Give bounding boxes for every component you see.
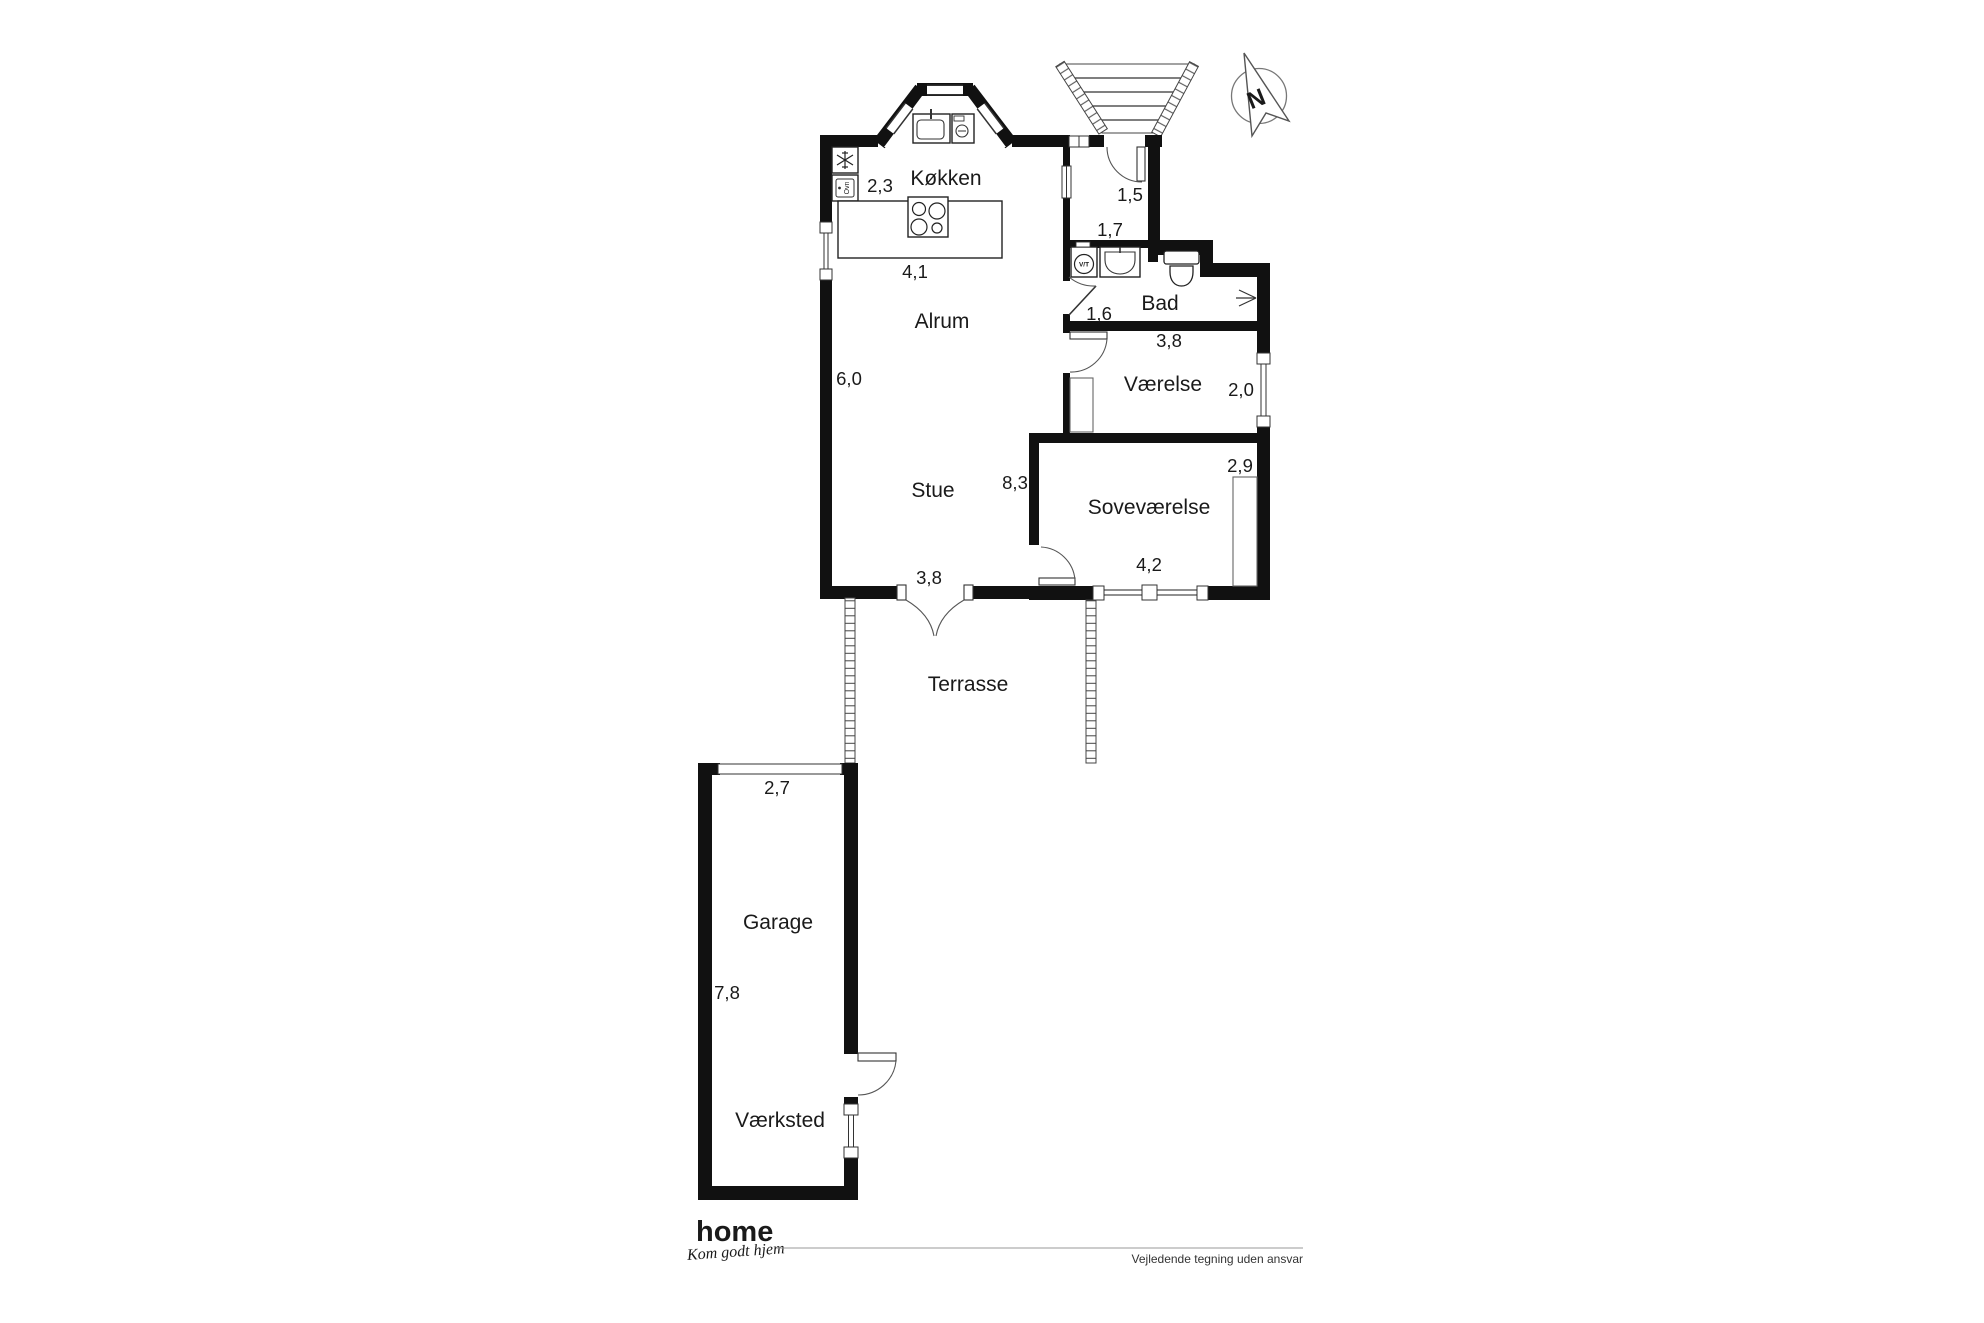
- dim-alrum-height: 6,0: [836, 368, 862, 389]
- terrasse-french-doors: [897, 585, 973, 636]
- kitchen-island: [838, 197, 1002, 258]
- footer: home Kom godt hjem Vejledende tegning ud…: [685, 1216, 1303, 1266]
- dim-vaerelse-height: 2,0: [1228, 379, 1254, 400]
- floorplan-drawing: N: [0, 0, 1984, 1323]
- dishwasher-icon: [952, 114, 974, 143]
- path-strip-left: [845, 598, 855, 763]
- entry-window: [1069, 136, 1089, 147]
- oven-label: Ovn: [844, 181, 851, 194]
- vaerksted-door: [858, 1053, 896, 1095]
- dim-vaerelse-width: 3,8: [1156, 330, 1182, 351]
- kitchen-fixtures: Ovn: [832, 147, 1002, 258]
- dim-sove-width: 4,2: [1136, 554, 1162, 575]
- niche-arrow-icon: [1236, 290, 1256, 306]
- bay-sink-icon: [913, 109, 950, 143]
- dim-stue-width: 3,8: [916, 567, 942, 588]
- room-label-sove: Soveværelse: [1088, 496, 1211, 519]
- fridge-icon: [832, 147, 858, 173]
- room-label-stue: Stue: [911, 479, 954, 502]
- vaerelse-window: [1257, 353, 1270, 427]
- dim-bad-height: 1,6: [1086, 303, 1112, 324]
- room-label-terrasse: Terrasse: [928, 673, 1009, 696]
- hall-window: [1062, 166, 1071, 198]
- room-label-vaerelse: Værelse: [1124, 373, 1202, 396]
- bath-sink-icon: [1100, 247, 1140, 277]
- kitchen-bay-window: [879, 89, 1011, 147]
- room-label-garage: Garage: [743, 911, 813, 934]
- vaerelse-wardrobe: [1070, 378, 1093, 432]
- compass: N: [1232, 53, 1290, 136]
- room-label-kokken: Køkken: [910, 167, 981, 190]
- dim-garage-height: 7,8: [714, 982, 740, 1003]
- path-strip-right: [1086, 600, 1096, 763]
- room-label-vaerksted: Værksted: [735, 1109, 825, 1132]
- washer-label: V/T: [1079, 262, 1089, 269]
- disclaimer-text: Vejledende tegning uden ansvar: [1132, 1252, 1303, 1266]
- entrance-stairs: [1056, 61, 1199, 137]
- room-label-alrum: Alrum: [915, 310, 970, 333]
- kitchen-window: [820, 222, 832, 280]
- toilet-icon: [1164, 251, 1199, 286]
- dim-sove-height: 2,9: [1227, 455, 1253, 476]
- washer-icon: V/T: [1071, 242, 1097, 277]
- floorplan-page: N: [0, 0, 1984, 1323]
- room-label-bad: Bad: [1141, 292, 1178, 315]
- sove-window: [1093, 585, 1208, 600]
- vaerksted-window: [844, 1104, 858, 1158]
- dim-garage-width: 2,7: [764, 777, 790, 798]
- dim-entre-width: 1,5: [1117, 184, 1143, 205]
- dim-entre-height: 1,7: [1097, 219, 1123, 240]
- sove-wardrobe: [1233, 477, 1257, 586]
- dim-stue-height: 8,3: [1002, 472, 1028, 493]
- dim-kokken-width: 2,3: [867, 175, 893, 196]
- front-door: [1107, 147, 1145, 182]
- sove-door: [1039, 547, 1075, 585]
- oven-icon: Ovn: [832, 175, 858, 201]
- garage-door: [718, 764, 842, 774]
- dim-island-width: 4,1: [902, 261, 928, 282]
- vaerelse-door: [1070, 332, 1107, 372]
